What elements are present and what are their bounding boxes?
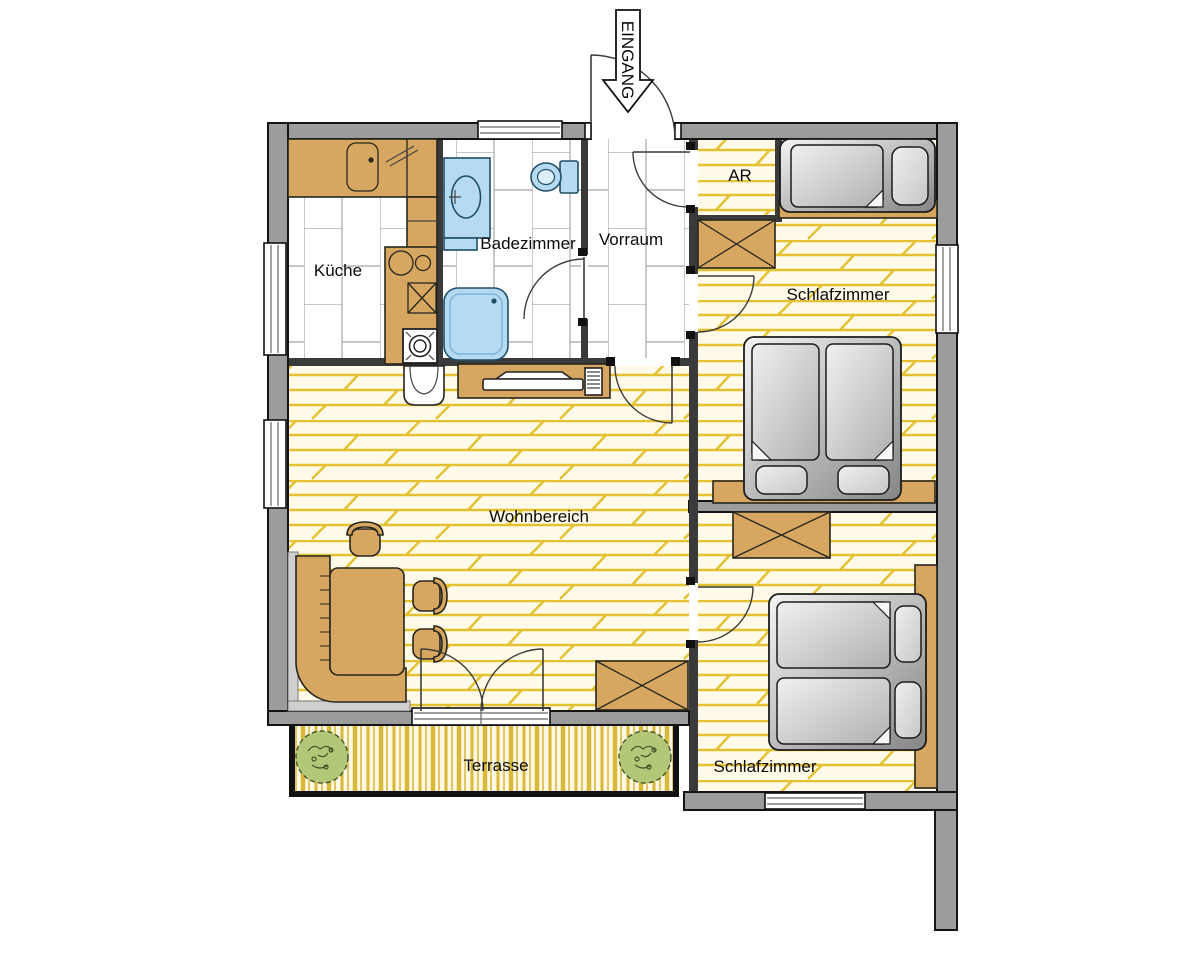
kueche-label: Küche (314, 261, 362, 280)
toilet-icon (531, 161, 578, 193)
outer-wall-right (937, 123, 957, 810)
door-opening-schlafzimmer-unten (689, 583, 698, 640)
window-badezimmer (478, 121, 562, 139)
hifi-icon (585, 368, 602, 395)
badezimmer-label: Badezimmer (480, 234, 576, 253)
sideboard (458, 364, 610, 398)
single-bed-icon (779, 139, 937, 218)
window-schlafzimmer-unten (765, 793, 865, 809)
dining-table (330, 568, 404, 675)
entrance-jamb-right (675, 123, 681, 139)
floor-plan-drawing: EINGANG Küche Badezimmer Vorraum AR Schl… (0, 0, 1200, 960)
eingang-label: EINGANG (618, 21, 637, 99)
window-schlafzimmer-oben (936, 245, 958, 333)
terrasse-label: Terrasse (463, 756, 528, 775)
plant-icon-right (619, 731, 671, 783)
double-bed-oben-icon (713, 337, 935, 503)
plant-icon-left (296, 731, 348, 783)
stove-icon (403, 329, 437, 363)
entrance-jamb-left (585, 123, 591, 139)
cupboard-wohnbereich (596, 661, 688, 710)
dining-chair-right-1 (413, 578, 447, 614)
door-opening-schlafzimmer-oben (689, 274, 698, 332)
floor-plan-page: EINGANG Küche Badezimmer Vorraum AR Schl… (0, 0, 1200, 960)
shower-icon (444, 288, 508, 360)
kitchen-counter (288, 139, 437, 197)
kitchen-cabinet-column (407, 197, 437, 249)
window-kueche (264, 243, 286, 355)
abstellraum-label: AR (728, 166, 752, 185)
wall-kueche-bad (437, 139, 443, 358)
schlafzimmer-oben-label: Schlafzimmer (787, 285, 890, 304)
wardrobe-oben-icon (698, 220, 775, 268)
door-opening-ar (689, 150, 698, 207)
dining-chair-top (347, 522, 383, 556)
door-opening-vorraum-wohnbereich (615, 358, 672, 366)
schlafzimmer-unten-label: Schlafzimmer (714, 757, 817, 776)
neighbour-wall-stub (935, 810, 957, 930)
window-wohnbereich (264, 420, 286, 508)
wohnbereich-label: Wohnbereich (489, 507, 589, 526)
armchair-icon (404, 366, 444, 405)
wardrobe-unten-icon (733, 512, 830, 558)
vorraum-label: Vorraum (599, 230, 663, 249)
dining-chair-right-2 (413, 626, 447, 662)
outer-wall-top-right (675, 123, 957, 139)
